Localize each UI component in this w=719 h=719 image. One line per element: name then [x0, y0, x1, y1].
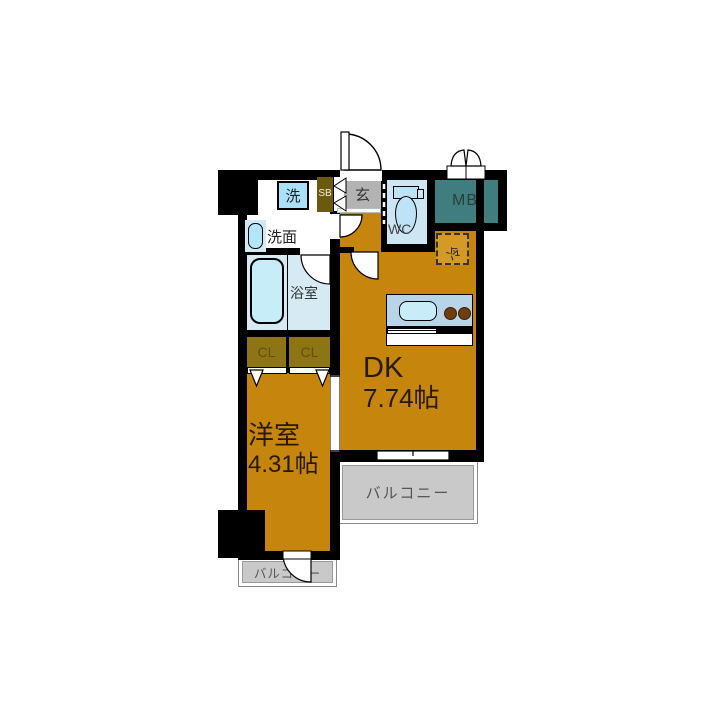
entry-inner-door-leaf	[334, 196, 346, 211]
door-window-symbols	[0, 0, 719, 719]
entrance-door-arc	[345, 134, 381, 170]
partition-sliding-door	[331, 375, 340, 452]
western-balcony-door-leaf	[283, 551, 311, 559]
washroom-door-arc	[340, 215, 362, 237]
closet-folding-door	[250, 370, 263, 386]
mb-door-leaf	[466, 150, 481, 166]
closet-folding-door	[316, 370, 329, 386]
dk-door-arc	[351, 252, 378, 279]
mb-door-leaf	[451, 150, 466, 166]
bathroom-door-arc	[301, 255, 330, 284]
floor-plan: バルコニー バルコニー 洗 SB 冷	[0, 0, 719, 719]
entrance-door-leaf	[341, 132, 349, 170]
washroom-door-opening	[330, 214, 340, 239]
bathroom-door-opening	[300, 248, 330, 255]
